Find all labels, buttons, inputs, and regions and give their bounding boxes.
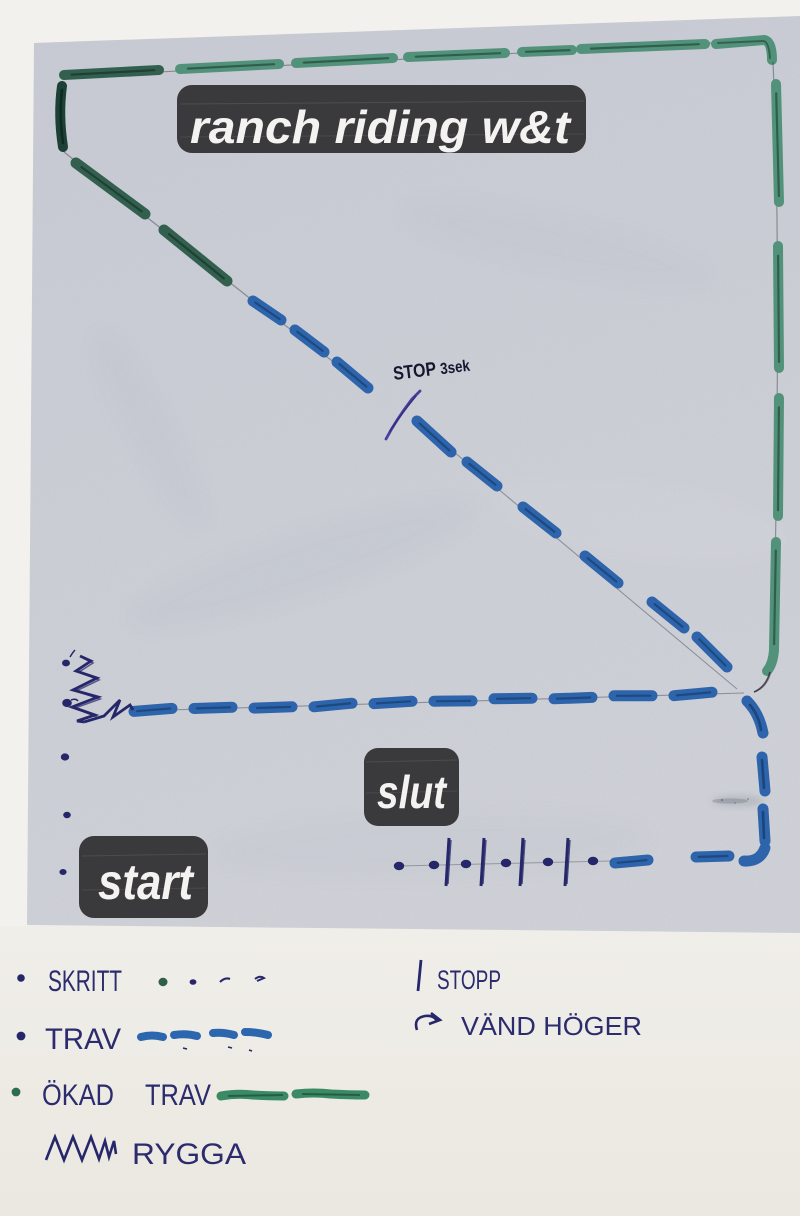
svg-text:slut: slut bbox=[377, 766, 447, 818]
svg-text:VÄND HÖGER: VÄND HÖGER bbox=[461, 1011, 642, 1041]
svg-text:RYGGA: RYGGA bbox=[132, 1138, 246, 1171]
svg-text:STOPP: STOPP bbox=[437, 965, 501, 995]
svg-text:start: start bbox=[98, 854, 195, 910]
svg-text:ranch riding w&t: ranch riding w&t bbox=[190, 101, 572, 153]
svg-text:ÖKAD: ÖKAD bbox=[42, 1079, 114, 1112]
svg-text:SKRITT: SKRITT bbox=[48, 965, 122, 998]
svg-text:TRAV: TRAV bbox=[45, 1023, 121, 1056]
svg-text:TRAV: TRAV bbox=[145, 1079, 211, 1112]
